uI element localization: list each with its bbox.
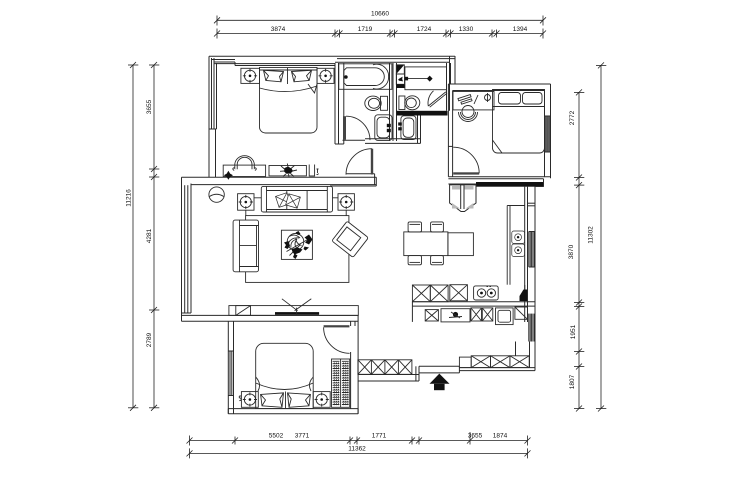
svg-text:1951: 1951 <box>570 324 577 339</box>
svg-text:2789: 2789 <box>146 332 153 347</box>
svg-text:11216: 11216 <box>126 189 133 207</box>
svg-text:3870: 3870 <box>568 244 575 259</box>
svg-text:1874: 1874 <box>493 433 508 440</box>
svg-text:1719: 1719 <box>358 26 373 33</box>
svg-text:4281: 4281 <box>146 228 153 243</box>
svg-text:1394: 1394 <box>513 26 528 33</box>
svg-text:1330: 1330 <box>459 26 474 33</box>
svg-text:2772: 2772 <box>569 110 576 125</box>
svg-text:5502: 5502 <box>269 433 284 440</box>
svg-text:3655: 3655 <box>468 433 483 440</box>
svg-text:11362: 11362 <box>348 446 366 453</box>
svg-text:1807: 1807 <box>569 374 576 389</box>
svg-text:1771: 1771 <box>372 433 387 440</box>
svg-text:3771: 3771 <box>295 433 310 440</box>
svg-text:1724: 1724 <box>417 26 432 33</box>
svg-text:11302: 11302 <box>588 226 595 244</box>
svg-text:3655: 3655 <box>146 99 153 114</box>
svg-text:10660: 10660 <box>371 11 389 18</box>
svg-text:3874: 3874 <box>271 26 286 33</box>
